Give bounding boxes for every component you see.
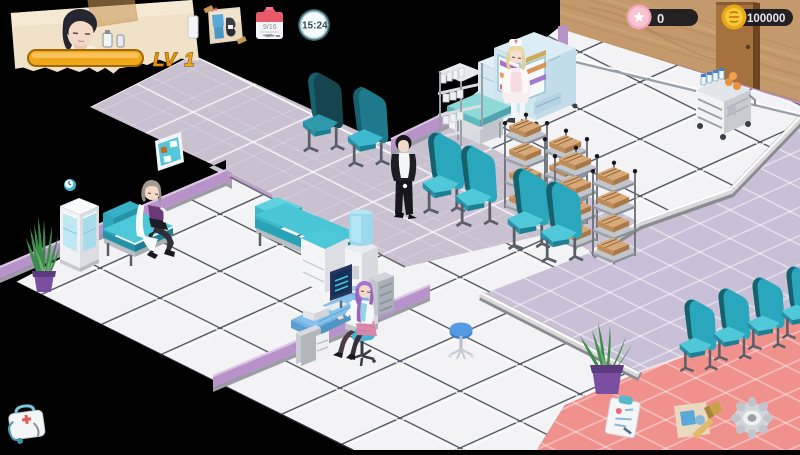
svg-text:1: 1 bbox=[184, 50, 195, 71]
svg-text:100000: 100000 bbox=[747, 13, 785, 25]
svg-text:9/16: 9/16 bbox=[263, 24, 277, 31]
svg-text:0: 0 bbox=[657, 11, 664, 26]
svg-text:15:24: 15:24 bbox=[302, 21, 328, 32]
svg-text:LV: LV bbox=[153, 50, 178, 71]
